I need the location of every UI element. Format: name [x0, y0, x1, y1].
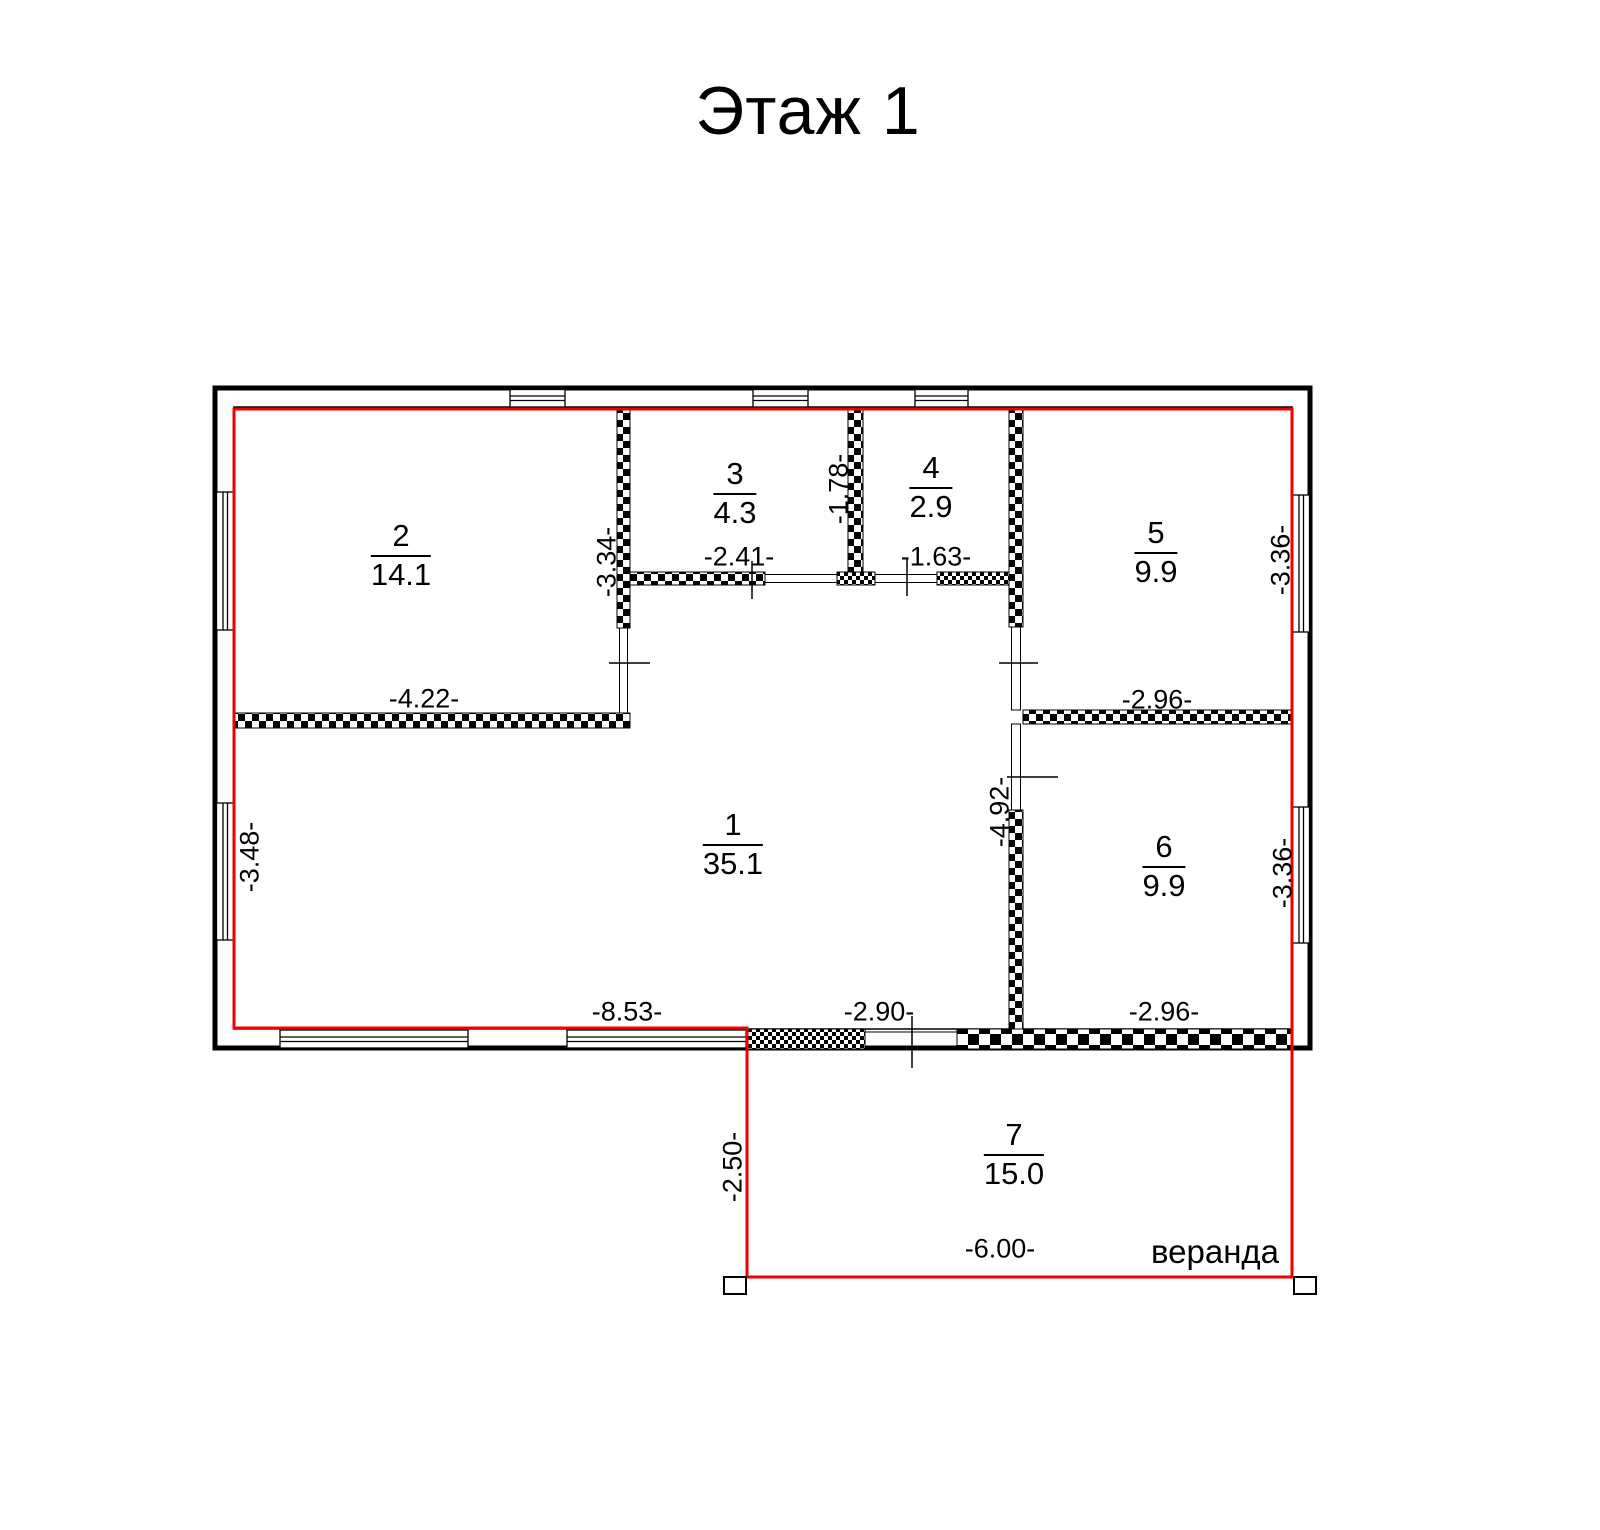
- door-openings: [620, 575, 1021, 1047]
- room-label-1: 1 35.1: [703, 809, 763, 880]
- dim-hall-height: -4.92-: [985, 777, 1016, 848]
- room-area: 35.1: [703, 846, 763, 880]
- dim-room1-height: -3.48-: [235, 822, 266, 893]
- dim-room2-width: -4.22-: [389, 684, 460, 715]
- room-number: 3: [713, 458, 756, 495]
- room-label-5: 5 9.9: [1134, 517, 1177, 588]
- opening-room4-hall: [875, 575, 937, 583]
- dim-room5-height: -3.36-: [1266, 525, 1297, 596]
- floor-plan-page: { "title": "Этаж 1", "colors": { "wall":…: [0, 0, 1600, 1530]
- window-bottom-1: [280, 1030, 468, 1048]
- dim-room1-width: -8.53-: [592, 997, 663, 1028]
- room-area: 4.3: [713, 495, 756, 529]
- window-top-1: [510, 390, 565, 408]
- veranda-post-right: [1294, 1277, 1316, 1294]
- veranda-caption: веранда: [1151, 1233, 1279, 1271]
- window-left-2: [217, 803, 235, 940]
- dim-room6-height: -3.36-: [1268, 838, 1299, 909]
- dim-room4-width: -1.63-: [901, 542, 972, 573]
- wall-below-room3: [630, 572, 765, 585]
- dim-veranda-depth: -2.50-: [718, 1132, 749, 1203]
- room-label-7: 7 15.0: [984, 1119, 1044, 1190]
- room-number: 7: [984, 1119, 1044, 1156]
- dim-room4-height: -1.78-: [824, 454, 855, 525]
- window-left-1: [217, 492, 235, 630]
- room-number: 1: [703, 809, 763, 846]
- dim-room3-height: -3.34-: [592, 527, 623, 598]
- wall-bottom-hatched: [747, 1029, 865, 1049]
- window-top-3: [915, 390, 968, 408]
- room-number: 2: [371, 520, 431, 557]
- veranda-post-left: [724, 1277, 746, 1294]
- wall-below-room4: [937, 572, 1009, 585]
- room-label-2: 2 14.1: [371, 520, 431, 591]
- room-area: 2.9: [909, 489, 952, 523]
- floor-plan-drawing: [0, 0, 1600, 1530]
- room-area: 9.9: [1142, 868, 1185, 902]
- dim-veranda-width: -6.00-: [965, 1234, 1036, 1265]
- window-top-2: [753, 390, 808, 408]
- dim-room6-width: -2.96-: [1129, 997, 1200, 1028]
- room-area: 15.0: [984, 1156, 1044, 1190]
- dim-room5-width: -2.96-: [1122, 685, 1193, 716]
- dim-room3-width: -2.41-: [704, 542, 775, 573]
- room-number: 6: [1142, 831, 1185, 868]
- dim-veranda-door: -2.90-: [844, 997, 915, 1028]
- interior-walls: [234, 407, 1292, 1049]
- veranda-posts: [724, 1277, 1316, 1294]
- opening-room5-hall: [1012, 627, 1021, 710]
- room-label-6: 6 9.9: [1142, 831, 1185, 902]
- wall-bottom-checkered: [957, 1029, 1292, 1049]
- wall-room4-room5: [1009, 407, 1023, 627]
- room-number: 5: [1134, 517, 1177, 554]
- opening-veranda-door: [865, 1032, 957, 1046]
- opening-room3-hall: [765, 575, 837, 583]
- wall-below-room34-junction: [837, 572, 875, 585]
- room-area: 14.1: [371, 557, 431, 591]
- room-label-4: 4 2.9: [909, 452, 952, 523]
- opening-room2-hall: [620, 628, 628, 713]
- room-number: 4: [909, 452, 952, 489]
- room-label-3: 3 4.3: [713, 458, 756, 529]
- window-bottom-2: [567, 1030, 746, 1048]
- wall-below-room2: [234, 713, 630, 728]
- room-area: 9.9: [1134, 554, 1177, 588]
